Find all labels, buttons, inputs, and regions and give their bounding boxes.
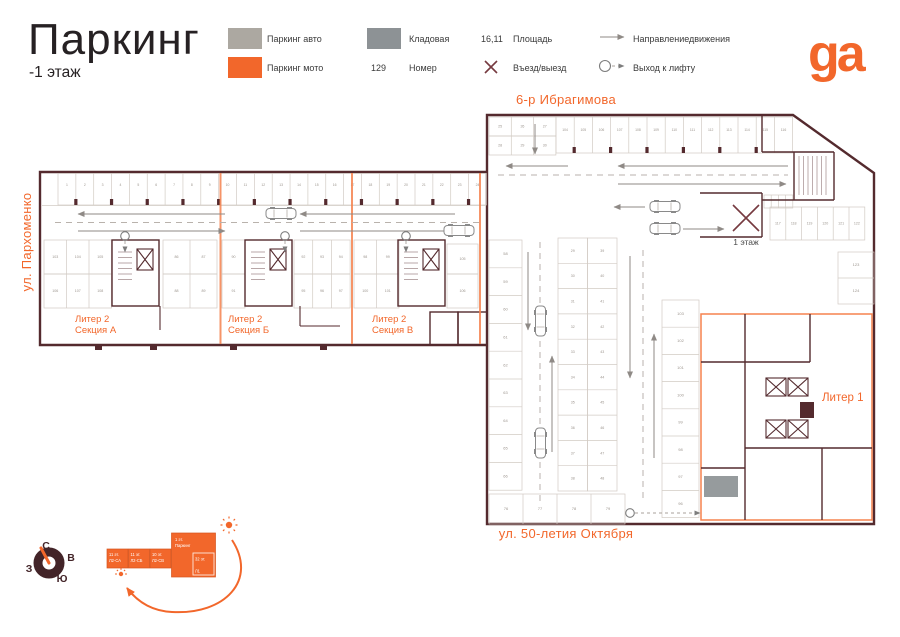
stall-row: 29303132333435363738: [558, 238, 588, 491]
stall-number: 78: [572, 506, 577, 511]
room: [430, 312, 458, 345]
stall-number: 44: [600, 375, 604, 379]
stall-number: 28: [498, 144, 502, 148]
stair-elevator-core-v: [398, 240, 445, 306]
stall-number: 5: [137, 183, 139, 187]
compass-e: В: [67, 552, 75, 564]
stall-row: 105: [447, 244, 478, 274]
compass-s: Ю: [57, 573, 68, 585]
legend-label-direction: Направлениедвижения: [633, 34, 730, 44]
stall-boundary: [645, 147, 648, 153]
liter1-elevators: [766, 378, 814, 438]
stall-number: 59: [503, 279, 508, 284]
stall-number: 95: [301, 289, 305, 293]
stair-core-walls: [762, 115, 834, 200]
stall-number: 1: [66, 183, 68, 187]
stall-number: 3: [102, 183, 104, 187]
liter1-interior: 1 этаж: [498, 115, 872, 520]
stall-number: 34: [571, 375, 575, 379]
sunset-icon: [115, 568, 127, 576]
stall-number: 92: [301, 255, 305, 259]
stall-boundary: [324, 199, 327, 205]
stall-number: 21: [422, 183, 426, 187]
stall-number: 14: [297, 183, 301, 187]
stall-number: 30: [543, 144, 547, 148]
stall-row: 123124: [838, 252, 874, 304]
stall-row: 585960616263646566: [489, 240, 522, 490]
stair-elevator-core-a: [112, 240, 159, 306]
stall-number: 60: [503, 307, 508, 312]
stall-rows: 1234567891011121314151617181920212223241…: [44, 117, 874, 524]
stall-row: 8687: [163, 240, 217, 274]
legend-label-entry: Въезд/выезд: [513, 63, 567, 73]
stall-row: 8889: [163, 274, 217, 308]
keyplan-text: 32 эт.: [195, 557, 205, 562]
compass: С В З Ю: [26, 540, 75, 585]
label-liter2-a-line1: Литер 2: [75, 314, 109, 325]
stall-number: 32: [571, 325, 575, 329]
stall-boundary: [110, 199, 113, 205]
keyplan-text: Паркинг: [175, 543, 191, 548]
stall-number: 116: [781, 128, 787, 132]
stall-number: 62: [503, 362, 508, 367]
stall-number: 104: [75, 255, 81, 259]
room: [458, 312, 487, 345]
stall-number: 115: [763, 128, 769, 132]
stall-number: 96: [320, 289, 324, 293]
stall-number: 114: [744, 128, 750, 132]
stall-number: 20: [404, 183, 408, 187]
legend-label-storage: Кладовая: [409, 34, 449, 44]
lift-exit-icon: [600, 61, 611, 72]
page-title: Паркинг: [28, 15, 200, 64]
stall-number: 90: [232, 255, 236, 259]
car-icon: [534, 306, 547, 336]
stall-number: 33: [571, 350, 575, 354]
stall-number: 105: [97, 255, 103, 259]
stall-number: 106: [52, 289, 58, 293]
car-icon: [650, 200, 680, 213]
stall-row: 929394: [294, 240, 350, 274]
stall-number: 99: [386, 255, 390, 259]
compass-n: С: [42, 540, 50, 552]
stall-row: 104105106107108109110111112113114115116: [556, 117, 793, 153]
stall-boundary: [573, 147, 576, 153]
stall-number: 108: [97, 289, 103, 293]
stall-number: 18: [368, 183, 372, 187]
elevator-icon: [270, 249, 286, 270]
keyplan-text: Л2-СА: [109, 558, 121, 563]
stall-number: 38: [571, 477, 575, 481]
stall-row: 117118119120121122: [770, 207, 865, 240]
stall-number: 39: [600, 249, 604, 253]
legend-label-parking-auto: Паркинг авто: [267, 34, 322, 44]
stall-number: 113: [726, 128, 732, 132]
stall-boundary: [288, 199, 291, 205]
stall-number: 87: [202, 255, 206, 259]
stall-number: 19: [386, 183, 390, 187]
stall-number: 30: [571, 274, 575, 278]
stall-number: 27: [543, 125, 547, 129]
stall-row: 106107108: [44, 274, 112, 308]
stall-number: 118: [791, 222, 797, 226]
car-icon: [266, 207, 296, 220]
stall-number: 2: [84, 183, 86, 187]
stall-number: 105: [460, 257, 466, 261]
brand-logo: ga: [808, 25, 867, 83]
stall-number: 79: [606, 506, 611, 511]
stall-boundary: [467, 199, 470, 205]
stall-number: 16: [333, 183, 337, 187]
stall-number: 24: [476, 183, 480, 187]
street-label-top: 6-р Ибрагимова: [516, 92, 616, 107]
car-icon: [534, 428, 547, 458]
stall-number: 106: [460, 289, 466, 293]
stall-boundary: [396, 199, 399, 205]
stall-row: 39404142434445464748: [588, 238, 618, 491]
stall-row: 959697: [294, 274, 350, 308]
stall-number: 101: [385, 289, 391, 293]
keyplan-text: 10 эт.: [152, 552, 162, 557]
stall-number: 13: [279, 183, 283, 187]
stall-number: 93: [320, 255, 324, 259]
legend-label-area: Площадь: [513, 34, 552, 44]
stall-number: 94: [339, 255, 343, 259]
stall-row: 76777879: [489, 494, 625, 524]
stall-number: 36: [571, 426, 575, 430]
stall-number: 107: [75, 289, 81, 293]
stall-boundary: [755, 147, 758, 153]
stall-number: 47: [600, 451, 604, 455]
stall-boundary: [74, 199, 77, 205]
stall-number: 7: [173, 183, 175, 187]
stall-boundary: [682, 147, 685, 153]
label-liter2-a-line2: Секция А: [75, 325, 117, 336]
stall-number: 76: [504, 506, 509, 511]
stall-row: 100101: [354, 274, 399, 308]
stall-number: 29: [571, 249, 575, 253]
stall-row: 9899: [354, 240, 399, 274]
stall-number: 100: [677, 392, 684, 397]
stall-number: 40: [600, 274, 604, 278]
stall-number: 61: [503, 335, 508, 340]
ramp-walls: [700, 193, 762, 237]
stall-row: 90: [222, 240, 245, 274]
lift-exit-marker: [626, 509, 635, 518]
stall-boundary: [253, 199, 256, 205]
label-liter2-v-line1: Литер 2: [372, 314, 406, 325]
stall-number: 119: [807, 222, 813, 226]
stall-number: 97: [339, 289, 343, 293]
stall-row: 123456789101112131415161718192021222324: [58, 174, 486, 206]
car-icon: [444, 224, 474, 237]
stall-number: 123: [853, 262, 860, 267]
stall-number: 23: [458, 183, 462, 187]
stall-number: 106: [599, 128, 605, 132]
stall-number: 77: [538, 506, 543, 511]
legend-label-lift: Выход к лифту: [633, 63, 696, 73]
stall-number: 124: [853, 288, 860, 293]
stall-number: 117: [775, 222, 781, 226]
stall-number: 91: [232, 289, 236, 293]
keyplan-text: Л1: [195, 569, 201, 574]
label-liter2-b-line2: Секция Б: [228, 325, 269, 336]
stall-number: 46: [600, 426, 604, 430]
stall-number: 10: [226, 183, 230, 187]
stall-number: 26: [520, 125, 524, 129]
stall-boundary: [431, 199, 434, 205]
stall-number: 66: [503, 474, 508, 479]
stall-number: 43: [600, 350, 604, 354]
stall-number: 48: [600, 477, 604, 481]
stall-number: 110: [672, 128, 678, 132]
stall-boundary: [609, 147, 612, 153]
legend-swatch-parking-moto: [228, 57, 262, 78]
header: Паркинг -1 этаж ga: [28, 15, 867, 83]
stall-number: 104: [562, 128, 568, 132]
stall-number: 45: [600, 401, 604, 405]
label-liter2-b-line1: Литер 2: [228, 314, 262, 325]
stall-number: 37: [571, 451, 575, 455]
stall-number: 111: [690, 128, 695, 132]
stall-number: 112: [708, 128, 714, 132]
stall-number: 31: [571, 299, 575, 303]
stall-number: 6: [155, 183, 157, 187]
floor1-label: 1 этаж: [733, 237, 759, 247]
stall-number: 65: [503, 446, 508, 451]
stall-number: 120: [822, 222, 828, 226]
legend-swatch-storage: [367, 28, 401, 49]
legend-swatch-parking-auto: [228, 28, 262, 49]
elevator-icon: [137, 249, 153, 270]
stall-number: 4: [120, 183, 122, 187]
stall-number: 12: [261, 183, 265, 187]
stall-row: 106: [447, 274, 478, 308]
street-label-bottom: ул. 50-летия Октября: [499, 526, 634, 541]
stall-number: 11: [244, 183, 248, 187]
stall-number: 35: [571, 401, 575, 405]
stall-number: 22: [440, 183, 444, 187]
lift-exit-marker: [121, 232, 411, 252]
stall-number: 9: [209, 183, 211, 187]
stall-number: 99: [678, 420, 683, 425]
stall-number: 122: [854, 222, 860, 226]
street-label-left: ул. Пархоменко: [19, 193, 34, 292]
floor-plan-canvas: Паркинг -1 этаж ga Паркинг авто Паркинг …: [0, 0, 900, 637]
legend: Паркинг авто Паркинг мото Кладовая 129 Н…: [228, 28, 730, 78]
stall-number: 98: [363, 255, 367, 259]
stall-row: 282930: [489, 136, 556, 155]
stall-number: 15: [315, 183, 319, 187]
stall-row: [764, 195, 793, 208]
label-liter2-v-line2: Секция В: [372, 325, 413, 336]
stall-number: 86: [175, 255, 179, 259]
page-subtitle: -1 этаж: [29, 64, 81, 81]
stall-number: 96: [678, 501, 683, 506]
stall-boundary: [360, 199, 363, 205]
stall-number: 109: [653, 128, 659, 132]
stall-boundary: [718, 147, 721, 153]
keyplan: 11 эт. Л2-СА 11 эт. Л2-СБ 10 эт. Л2-СВ 1…: [107, 517, 241, 613]
stall-row: 91: [222, 274, 245, 308]
stall-number: 25: [498, 125, 502, 129]
stall-number: 103: [677, 311, 684, 316]
stall-row: 10310210110099989796: [662, 300, 699, 518]
stall-number: 102: [677, 338, 684, 343]
stall-number: 63: [503, 390, 508, 395]
stall-boundary: [181, 199, 184, 205]
entry-exit-icon: [485, 61, 497, 73]
legend-sample-number: 129: [371, 63, 386, 73]
stall-number: 103: [52, 255, 58, 259]
legend-sample-area: 16,11: [481, 34, 503, 44]
keyplan-text: 11 эт.: [109, 552, 119, 557]
keyplan-text: 1 эт.: [175, 537, 183, 542]
stall-number: 107: [617, 128, 623, 132]
sun-icon: [221, 517, 238, 534]
stall-number: 42: [600, 325, 604, 329]
keyplan-text: 11 эт.: [131, 552, 141, 557]
storage-cell: [704, 476, 738, 497]
stall-row: 252627: [489, 117, 556, 136]
stall-number: 64: [503, 418, 508, 423]
keyplan-text: Л2-СБ: [131, 558, 143, 563]
label-liter1: Литер 1: [822, 392, 864, 404]
stall-number: 98: [678, 447, 683, 452]
stall-number: 58: [503, 251, 508, 256]
stall-number: 89: [202, 289, 206, 293]
car-icon: [650, 222, 680, 235]
stall-number: 88: [175, 289, 179, 293]
stall-number: 100: [362, 289, 368, 293]
legend-label-parking-moto: Паркинг мото: [267, 63, 323, 73]
stall-number: 8: [191, 183, 193, 187]
stall-number: 29: [520, 144, 524, 148]
stall-row: 103104105: [44, 240, 112, 274]
compass-w: З: [26, 563, 33, 575]
stall-number: 41: [600, 299, 604, 303]
entry-exit-x: [733, 205, 759, 231]
stall-number: 121: [838, 222, 844, 226]
stall-number: 105: [580, 128, 586, 132]
stall-number: 101: [677, 365, 684, 370]
stall-boundary: [146, 199, 149, 205]
elevator-icon: [423, 249, 439, 270]
stall-number: 108: [635, 128, 641, 132]
keyplan-text: Л2-СВ: [152, 558, 164, 563]
parking-plan-page: Паркинг -1 этаж ga Паркинг авто Паркинг …: [0, 0, 900, 637]
stall-number: 97: [678, 474, 683, 479]
legend-label-number: Номер: [409, 63, 437, 73]
